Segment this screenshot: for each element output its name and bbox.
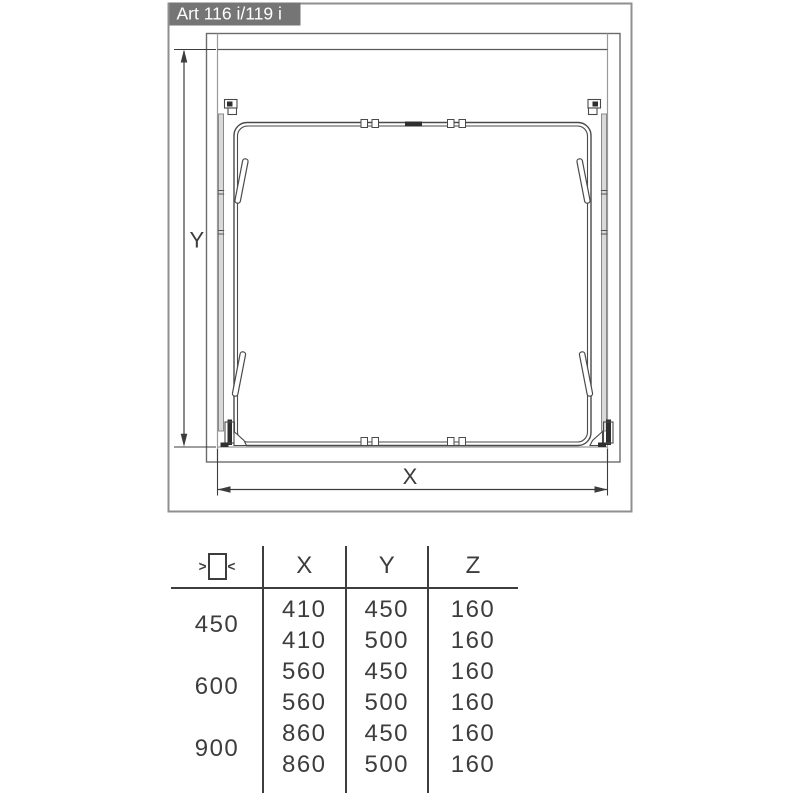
top-rail-center-stop bbox=[405, 122, 422, 127]
cabinet-box-icon bbox=[208, 553, 227, 580]
cell-y: 500 bbox=[346, 749, 429, 781]
col-header-z: Z bbox=[428, 546, 518, 586]
col-header-y: Y bbox=[346, 546, 429, 586]
arrow-left-icon: < bbox=[228, 559, 236, 574]
table-header-divider bbox=[171, 587, 518, 589]
cell-z: 160 bbox=[428, 594, 518, 626]
group-width-label: 450 bbox=[171, 609, 263, 641]
right-top-clip-icon bbox=[588, 100, 601, 115]
title-tab: Art 116 i/119 i bbox=[170, 3, 301, 26]
cell-x: 410 bbox=[263, 625, 346, 657]
cell-z: 160 bbox=[428, 718, 518, 750]
group-width-label: 600 bbox=[171, 671, 263, 703]
y-dimension-label: Y bbox=[190, 228, 205, 253]
group-width-label: 900 bbox=[171, 733, 263, 765]
cell-z: 160 bbox=[428, 749, 518, 781]
rail-connector-marks bbox=[361, 120, 466, 446]
arrow-right-icon: > bbox=[199, 559, 207, 574]
cell-x: 560 bbox=[263, 687, 346, 719]
col-header-x: X bbox=[263, 546, 346, 586]
cell-x: 410 bbox=[263, 594, 346, 626]
x-dimension-label: X bbox=[403, 464, 418, 489]
page-title: Art 116 i/119 i bbox=[177, 4, 282, 24]
technical-drawing: Y X Art 116 i/119 i bbox=[0, 0, 800, 545]
cell-x: 860 bbox=[263, 749, 346, 781]
cell-z: 160 bbox=[428, 687, 518, 719]
left-runner bbox=[218, 114, 224, 431]
cell-x: 860 bbox=[263, 718, 346, 750]
cell-y: 500 bbox=[346, 625, 429, 657]
right-runner bbox=[601, 114, 607, 431]
cabinet-carcass bbox=[207, 34, 621, 463]
cell-z: 160 bbox=[428, 625, 518, 657]
cell-y: 450 bbox=[346, 656, 429, 688]
x-dimension: X bbox=[218, 449, 608, 496]
dimension-table: > < X Y Z 450 600 900 410 450 160 410 50… bbox=[171, 546, 518, 796]
cell-y: 450 bbox=[346, 718, 429, 750]
cabinet-width-icon: > < bbox=[171, 546, 263, 586]
cell-y: 450 bbox=[346, 594, 429, 626]
cell-x: 560 bbox=[263, 656, 346, 688]
y-dimension: Y bbox=[174, 50, 216, 448]
cell-y: 500 bbox=[346, 687, 429, 719]
left-top-clip-icon bbox=[225, 100, 238, 115]
cell-z: 160 bbox=[428, 656, 518, 688]
page: Y X Art 116 i/119 i > < X Y Z bbox=[0, 0, 800, 800]
pull-out-frame bbox=[232, 120, 593, 446]
